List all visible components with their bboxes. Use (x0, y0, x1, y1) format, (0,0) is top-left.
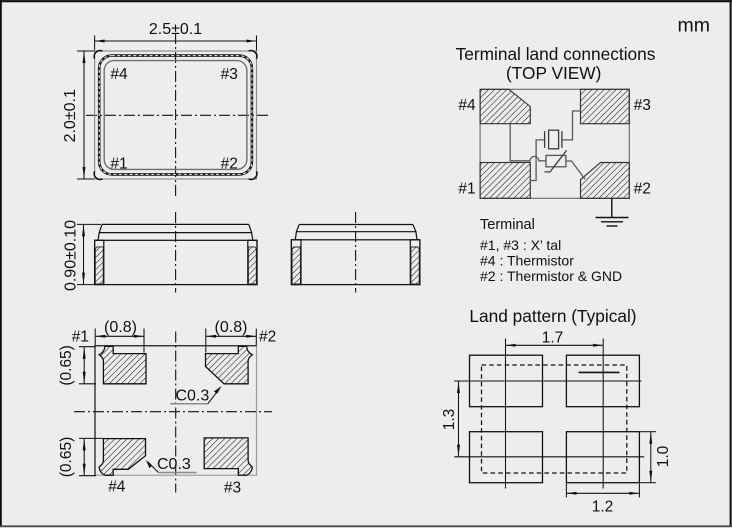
svg-text:(TOP VIEW): (TOP VIEW) (506, 63, 601, 83)
svg-text:(0.8): (0.8) (215, 319, 248, 336)
svg-text:Terminal: Terminal (480, 217, 535, 233)
svg-text:#2: #2 (634, 180, 651, 197)
svg-text:0.90±0.10: 0.90±0.10 (63, 220, 80, 291)
svg-text:#4: #4 (458, 97, 476, 114)
svg-text:C0.3: C0.3 (157, 456, 191, 473)
svg-text:#2: #2 (259, 328, 276, 345)
svg-text:#2 : Thermistor & GND: #2 : Thermistor & GND (480, 268, 622, 284)
svg-text:#2: #2 (221, 155, 238, 172)
svg-text:C0.3: C0.3 (176, 388, 210, 405)
svg-text:mm: mm (678, 15, 711, 37)
svg-text:(0.65): (0.65) (58, 437, 75, 478)
svg-text:#1: #1 (72, 328, 89, 345)
svg-text:#3: #3 (634, 97, 651, 114)
svg-text:#4: #4 (108, 479, 126, 496)
svg-text:#4 : Thermistor: #4 : Thermistor (480, 253, 574, 269)
svg-text:2.0±0.1: 2.0±0.1 (62, 89, 79, 142)
svg-text:(0.8): (0.8) (104, 319, 137, 336)
svg-text:2.5±0.1: 2.5±0.1 (149, 21, 202, 38)
svg-text:(0.65): (0.65) (58, 345, 75, 386)
svg-text:#3: #3 (224, 480, 241, 497)
svg-text:#4: #4 (110, 66, 128, 83)
svg-text:1.2: 1.2 (592, 498, 614, 515)
svg-text:1.7: 1.7 (542, 329, 564, 346)
svg-text:#1: #1 (458, 180, 475, 197)
svg-text:1.3: 1.3 (441, 409, 458, 431)
svg-text:Terminal land connections: Terminal land connections (456, 44, 656, 64)
svg-text:#3: #3 (221, 66, 238, 83)
svg-text:Land pattern (Typical): Land pattern (Typical) (469, 306, 636, 326)
svg-text:#1, #3 : X’ tal: #1, #3 : X’ tal (480, 237, 561, 253)
svg-text:1.0: 1.0 (655, 445, 672, 467)
svg-text:#1: #1 (110, 155, 127, 172)
